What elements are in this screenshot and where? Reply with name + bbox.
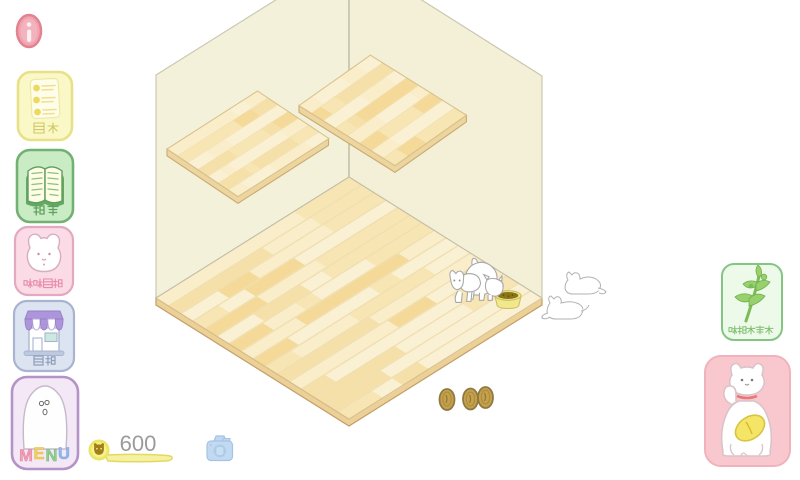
svg-text:E: E: [33, 445, 44, 463]
svg-text:600: 600: [120, 431, 157, 456]
svg-text:M: M: [19, 447, 33, 465]
svg-text:U: U: [58, 445, 70, 463]
svg-text:N: N: [46, 447, 58, 465]
